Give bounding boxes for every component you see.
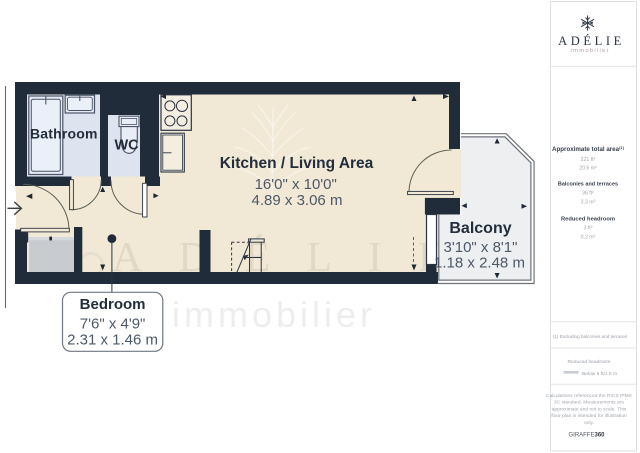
svg-text:3'10" x 8'1": 3'10" x 8'1" <box>444 239 518 256</box>
svg-text:floor plan is intended for ill: floor plan is intended for illustration <box>551 413 627 419</box>
svg-text:Reduced headroom: Reduced headroom <box>561 217 615 223</box>
svg-text:Below 5 ft/1.5 m: Below 5 ft/1.5 m <box>582 371 617 377</box>
svg-text:2.31 x 1.46 m: 2.31 x 1.46 m <box>67 331 158 348</box>
svg-text:Approximate total area(1): Approximate total area(1) <box>552 145 625 153</box>
svg-text:3 ft²: 3 ft² <box>584 226 593 232</box>
svg-text:3.3 m²: 3.3 m² <box>581 200 596 206</box>
svg-text:20.6 m²: 20.6 m² <box>579 166 597 172</box>
svg-text:7'6" x 4'9": 7'6" x 4'9" <box>80 315 146 332</box>
svg-text:3C standard. Measurements are: 3C standard. Measurements are <box>554 400 624 406</box>
svg-text:0.2 m²: 0.2 m² <box>581 235 596 241</box>
svg-text:GIRAFFE360: GIRAFFE360 <box>568 433 605 439</box>
svg-text:ADÉLIE: ADÉLIE <box>558 34 625 48</box>
svg-text:4.89 x 3.06 m: 4.89 x 3.06 m <box>252 192 343 209</box>
svg-text:(1) Excluding balconies and te: (1) Excluding balconies and terraces <box>553 334 628 339</box>
svg-text:Bedroom: Bedroom <box>80 296 146 313</box>
svg-text:Calculations referenced the RI: Calculations referenced the RICS IPMS <box>546 393 633 399</box>
svg-text:Reduced headroom: Reduced headroom <box>568 359 611 365</box>
svg-text:1.18 x 2.48 m: 1.18 x 2.48 m <box>434 254 525 271</box>
svg-text:immobilier: immobilier <box>570 48 609 54</box>
svg-text:immobilier: immobilier <box>172 294 376 335</box>
svg-text:approximate and not to scale.: approximate and not to scale. This <box>552 406 627 412</box>
svg-text:Balconies and terraces: Balconies and terraces <box>558 181 618 187</box>
svg-text:Kitchen / Living Area: Kitchen / Living Area <box>220 155 374 172</box>
svg-text:16'0" x 10'0": 16'0" x 10'0" <box>255 176 337 193</box>
svg-text:only.: only. <box>584 420 594 426</box>
svg-text:WC: WC <box>115 137 140 153</box>
svg-text:Bathroom: Bathroom <box>30 126 98 142</box>
svg-text:221 ft²: 221 ft² <box>581 157 596 163</box>
svg-text:Balcony: Balcony <box>449 220 511 237</box>
svg-text:36 ft²: 36 ft² <box>582 191 594 197</box>
